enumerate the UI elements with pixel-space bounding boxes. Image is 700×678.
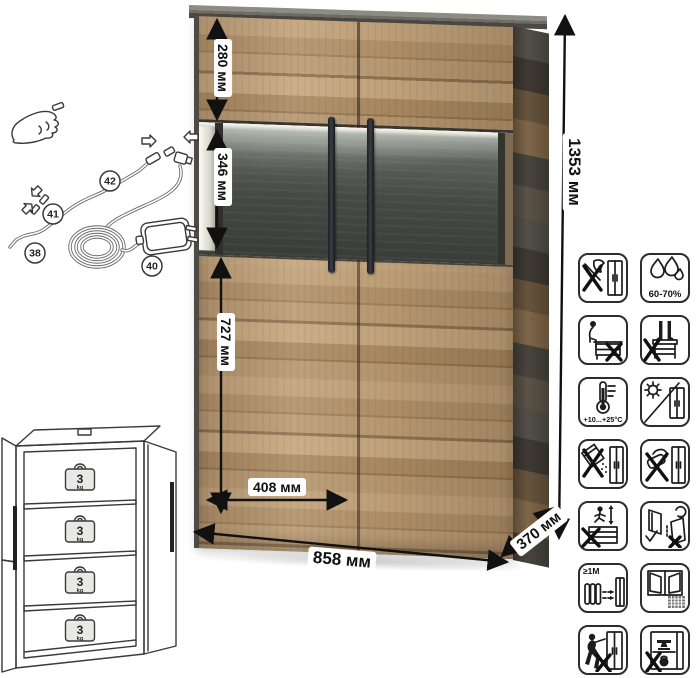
arrow-1353 bbox=[559, 16, 565, 538]
dim-label-408: 408 мм bbox=[248, 478, 306, 496]
window-icon bbox=[643, 566, 687, 610]
part-number: 42 bbox=[104, 176, 116, 188]
weight-unit: kg bbox=[77, 537, 83, 543]
care-icon-no-sunlight bbox=[640, 377, 690, 427]
no-scrub-icon bbox=[643, 442, 687, 486]
hand-sketch bbox=[12, 102, 64, 143]
dc-plug bbox=[174, 152, 193, 166]
door-gap-upper bbox=[357, 22, 360, 128]
cable-coil bbox=[70, 227, 140, 267]
care-icon-humidity: 60-70% bbox=[640, 253, 690, 303]
care-icon-no-jumping bbox=[578, 501, 628, 551]
care-icon-no-standing bbox=[640, 315, 690, 365]
led-kit-diagram: 42 41 38 40 bbox=[10, 102, 199, 276]
power-adapter bbox=[134, 216, 199, 256]
cabinet-side-panel bbox=[513, 26, 549, 568]
dim-label-1353: 1353 мм bbox=[563, 133, 585, 211]
cabinet-outline bbox=[16, 441, 144, 668]
part-number: 40 bbox=[146, 261, 158, 273]
care-icon-no-dragging bbox=[578, 625, 628, 675]
weight-unit: kg bbox=[77, 636, 83, 642]
strip-connectors bbox=[30, 194, 49, 214]
no-sharp-tools-icon bbox=[581, 256, 625, 300]
cabinet-lower-doors bbox=[199, 254, 513, 559]
shelf-weight-2: 3 kg bbox=[66, 516, 95, 543]
part-number: 41 bbox=[47, 209, 59, 221]
no-jumping-icon bbox=[581, 504, 625, 548]
part-badge-40: 40 bbox=[142, 256, 162, 276]
open-doors bbox=[2, 438, 176, 672]
door-adjust-icon bbox=[643, 504, 687, 548]
no-sitting-icon bbox=[581, 318, 625, 362]
weight-value: 3 bbox=[77, 472, 84, 486]
shelf-load-diagram: 3 kg 3 kg 3 kg 3 kg bbox=[2, 426, 176, 672]
door-handle-right bbox=[367, 118, 374, 274]
part-badge-38: 38 bbox=[25, 243, 45, 263]
temperature-range-text: +10...+25°C bbox=[580, 416, 626, 423]
no-overload-icon bbox=[643, 628, 687, 672]
shelf-weight-1: 3 kg bbox=[66, 464, 95, 491]
cabinet-front bbox=[194, 16, 513, 559]
door-handle-left bbox=[13, 506, 17, 570]
dim-label-858: 858 мм bbox=[307, 546, 377, 573]
adapter-cord bbox=[106, 166, 181, 228]
care-icon-no-sitting bbox=[578, 315, 628, 365]
glass-frame-right bbox=[498, 133, 505, 265]
dim-label-727: 727 мм bbox=[217, 313, 235, 371]
lit-interior bbox=[199, 126, 215, 251]
product-dimension-sheet: 42 41 38 40 bbox=[0, 0, 700, 678]
door-gap-lower bbox=[357, 260, 360, 554]
part-number: 38 bbox=[29, 248, 41, 260]
door-handle-left bbox=[328, 117, 335, 273]
weight-value: 3 bbox=[77, 575, 84, 589]
weight-value: 3 bbox=[77, 623, 84, 637]
dim-label-346: 346 мм bbox=[214, 148, 232, 206]
cabinet-upper-doors bbox=[199, 16, 513, 133]
shelves bbox=[24, 500, 136, 652]
care-icon-heat-distance: ≥1М bbox=[578, 563, 628, 613]
part-badge-41: 41 bbox=[43, 204, 63, 224]
no-drag-icon bbox=[581, 628, 625, 672]
cabinet-top-face bbox=[16, 426, 160, 446]
distance-text: ≥1М bbox=[583, 567, 599, 576]
door-handle-right bbox=[170, 482, 174, 552]
cabinet-opening bbox=[24, 448, 136, 658]
dim-label-280: 280 мм bbox=[214, 39, 232, 97]
shelf-weight-3: 3 kg bbox=[66, 567, 95, 594]
care-icon-no-abrasives bbox=[578, 439, 628, 489]
care-icon-no-sharp-tools bbox=[578, 253, 628, 303]
care-icon-no-scrubbing bbox=[640, 439, 690, 489]
care-icon-no-overload bbox=[640, 625, 690, 675]
no-standing-icon bbox=[643, 318, 687, 362]
sun-slash-cabinet-icon bbox=[643, 380, 687, 424]
shelf-weight-4: 3 kg bbox=[66, 615, 95, 642]
cabinet-glass-display bbox=[199, 122, 513, 265]
weight-value: 3 bbox=[77, 524, 84, 538]
led-strip-cable bbox=[10, 163, 148, 247]
humidity-range-text: 60-70% bbox=[642, 290, 688, 300]
cable-connector bbox=[145, 146, 175, 165]
glass-wood-edge bbox=[505, 133, 513, 265]
care-icon-temperature: +10...+25°C bbox=[578, 377, 628, 427]
no-powder-icon bbox=[581, 442, 625, 486]
care-icon-adjust-doors bbox=[640, 501, 690, 551]
part-badge-42: 42 bbox=[100, 171, 120, 191]
care-icon-ventilate bbox=[640, 563, 690, 613]
weight-unit: kg bbox=[77, 588, 83, 594]
connect-arrows bbox=[20, 131, 198, 216]
weight-unit: kg bbox=[77, 485, 83, 491]
led-box bbox=[78, 429, 91, 435]
care-icon-grid: 60-70% bbox=[578, 253, 690, 675]
